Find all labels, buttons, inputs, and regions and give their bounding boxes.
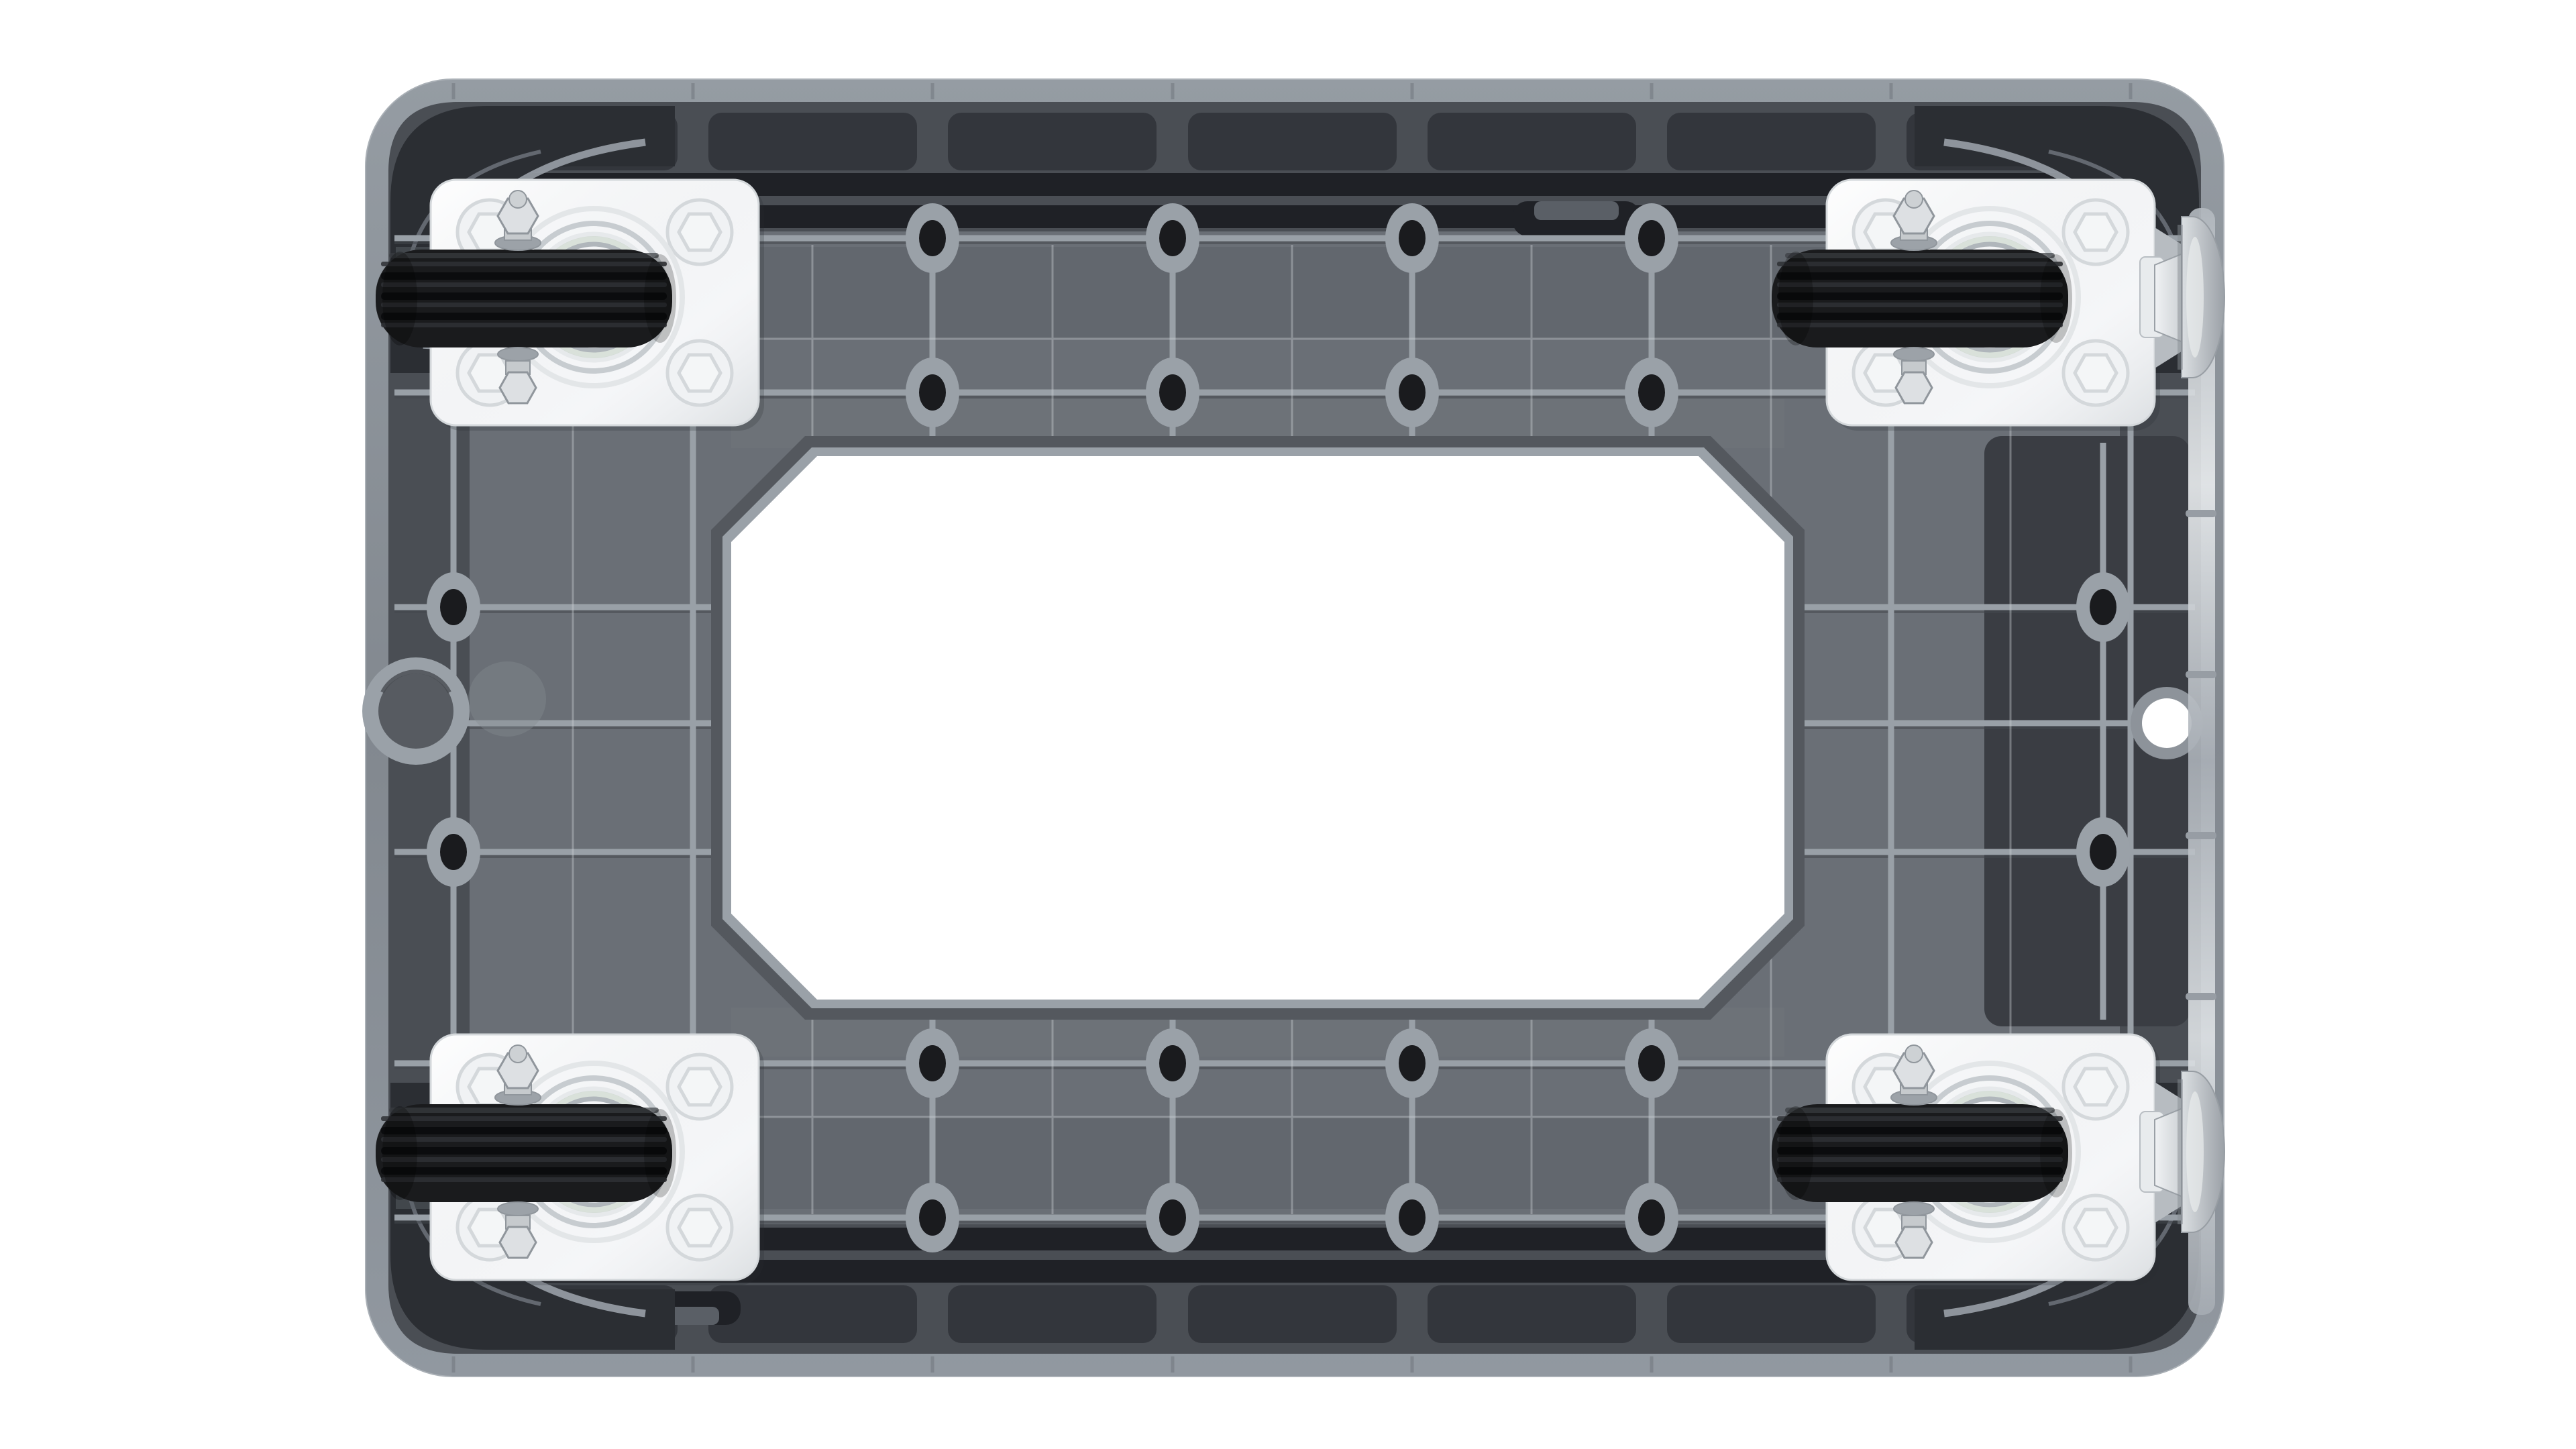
cutout-opening (731, 456, 1784, 1000)
top-recess-row (469, 113, 2115, 170)
product-photo-stage (0, 0, 2576, 1449)
deck-cutout (711, 436, 1805, 1020)
dolly-underside-photo (0, 0, 2576, 1449)
left-round-boss (362, 657, 470, 765)
ghost-circle (468, 661, 546, 737)
caster-top-left (376, 180, 764, 431)
caster-bottom-right (1772, 1034, 2224, 1285)
caster-top-right (1772, 180, 2224, 431)
grip-tab (1534, 201, 1619, 220)
caster-bottom-left (376, 1034, 764, 1285)
